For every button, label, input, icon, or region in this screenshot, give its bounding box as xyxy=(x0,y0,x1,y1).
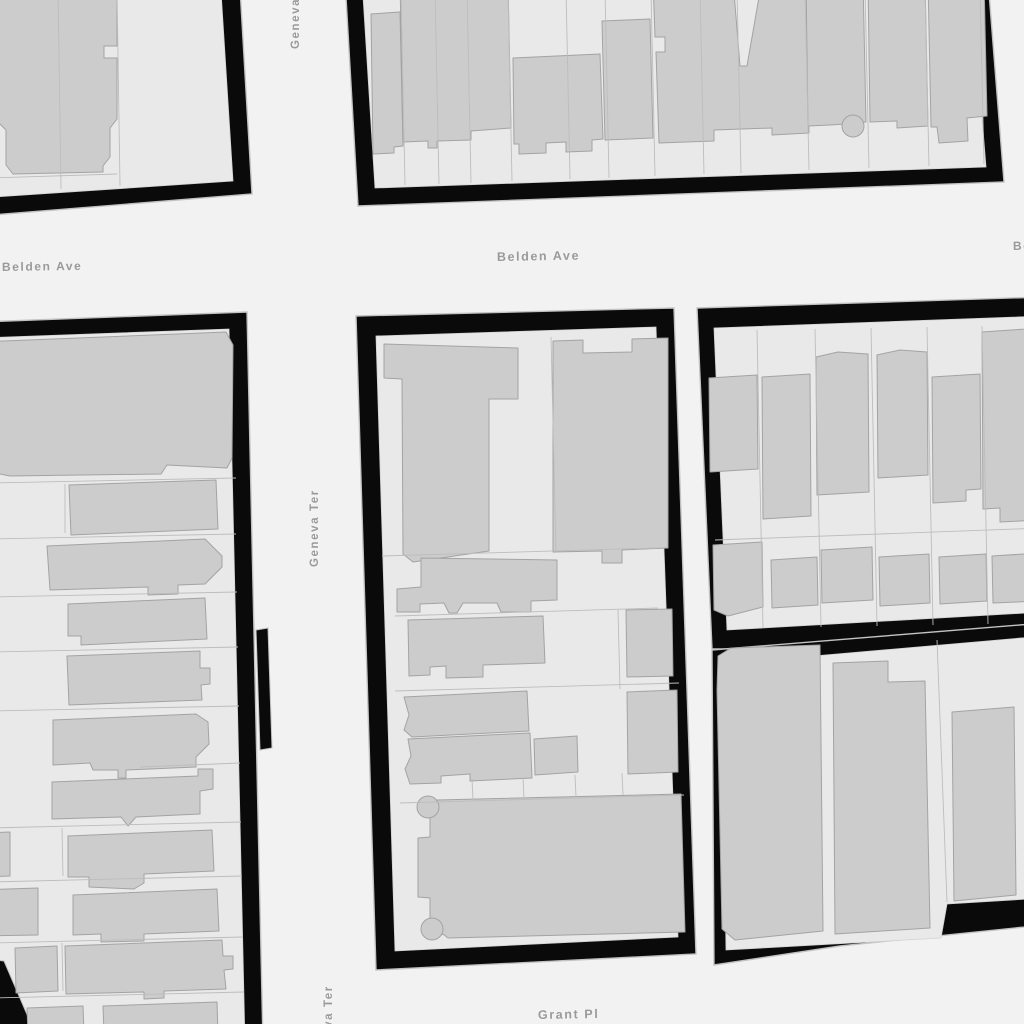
building-footprint xyxy=(418,794,685,938)
building-footprint xyxy=(404,691,529,737)
building-footprint xyxy=(771,557,818,608)
building-footprint xyxy=(952,707,1016,901)
building-footprint xyxy=(653,0,809,143)
building-footprint xyxy=(821,547,873,603)
map-canvas[interactable]: Belden AveBelden AveBelden AveGeneva Ter… xyxy=(0,0,1024,1024)
building-footprint xyxy=(816,352,869,495)
building-footprint xyxy=(0,832,10,877)
building-footprint xyxy=(15,946,58,993)
building-footprint-knob xyxy=(842,115,864,137)
building-footprint xyxy=(713,542,763,616)
building-footprint-knob xyxy=(417,796,439,818)
street-label-belden-ave-left: Belden Ave xyxy=(2,259,83,274)
building-footprint xyxy=(68,598,207,645)
street-label-geneva-ter-mid: Geneva Ter xyxy=(309,489,321,567)
building-footprint xyxy=(762,374,811,519)
building-footprint xyxy=(69,480,218,535)
building-footprint xyxy=(877,350,928,478)
building-footprint xyxy=(879,554,930,606)
street-label-belden-ave-right: Belden Ave xyxy=(1013,238,1024,253)
building-footprint xyxy=(67,651,210,705)
building-footprint xyxy=(513,54,603,154)
building-footprint xyxy=(626,609,673,677)
building-footprint xyxy=(868,0,928,128)
building-footprint xyxy=(400,0,511,148)
building-footprint xyxy=(602,19,653,140)
building-footprint xyxy=(717,645,823,940)
building-footprint xyxy=(553,338,668,563)
building-footprint xyxy=(833,661,930,934)
building-footprint xyxy=(371,12,403,154)
parcel-map-svg[interactable]: Belden AveBelden AveBelden AveGeneva Ter… xyxy=(0,0,1024,1024)
building-footprint xyxy=(992,553,1024,603)
building-footprint xyxy=(939,554,987,604)
building-footprint xyxy=(103,1002,218,1024)
building-footprint xyxy=(982,328,1024,522)
building-footprint xyxy=(0,888,38,936)
building-footprint xyxy=(806,0,866,126)
building-footprint xyxy=(709,375,758,472)
building-footprint xyxy=(627,690,678,774)
building-footprint xyxy=(932,374,981,503)
street-label-belden-ave-center: Belden Ave xyxy=(497,249,580,264)
building-footprint xyxy=(0,332,233,476)
street-label-geneva-ter-top: Geneva Ter xyxy=(290,0,302,49)
building-footprint xyxy=(534,736,578,775)
street-label-geneva-ter-bottom: Geneva Ter xyxy=(323,985,335,1024)
street-label-grant-pl: Grant Pl xyxy=(538,1007,600,1022)
building-footprint xyxy=(27,1006,84,1024)
building-footprint-knob xyxy=(421,918,443,940)
